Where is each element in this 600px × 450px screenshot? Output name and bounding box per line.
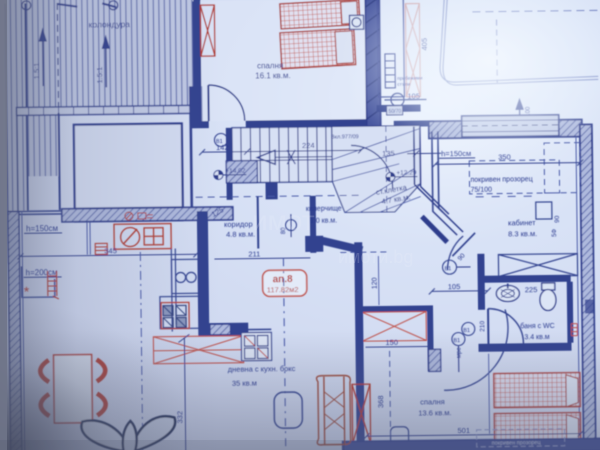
svg-text:135: 135 <box>382 149 395 158</box>
svg-text:баня с WC: баня с WC <box>520 322 555 330</box>
svg-text:224: 224 <box>302 141 315 150</box>
svg-text:75/100: 75/100 <box>471 187 493 194</box>
svg-text:5Ф: 5Ф <box>552 229 558 237</box>
svg-text:117.82м2: 117.82м2 <box>267 285 299 294</box>
svg-text:16.1 кв.м.: 16.1 кв.м. <box>255 71 291 80</box>
svg-text:ап.8: ап.8 <box>273 274 294 285</box>
svg-text:+14.02: +14.02 <box>225 168 246 175</box>
svg-text:коридор: коридор <box>224 220 253 229</box>
svg-text:90: 90 <box>554 215 561 223</box>
svg-text:120: 120 <box>372 277 379 289</box>
svg-text:Вкл.977/09: Вкл.977/09 <box>331 134 359 140</box>
svg-text:покривен прозорец: покривен прозорец <box>470 176 532 184</box>
svg-text:В1: В1 <box>445 266 452 272</box>
svg-text:8.3 кв.м.: 8.3 кв.м. <box>508 229 537 238</box>
svg-text:имот: имот <box>252 205 315 236</box>
svg-text:имоти.bg: имоти.bg <box>338 247 413 267</box>
svg-text:спалня: спалня <box>257 61 283 70</box>
svg-text:105: 105 <box>448 282 461 291</box>
svg-text:4.8 кв.м.: 4.8 кв.м. <box>226 230 255 239</box>
svg-text:+12.29: +12.29 <box>396 170 417 177</box>
svg-text:кабинет: кабинет <box>508 218 536 227</box>
svg-text:225: 225 <box>525 285 538 294</box>
